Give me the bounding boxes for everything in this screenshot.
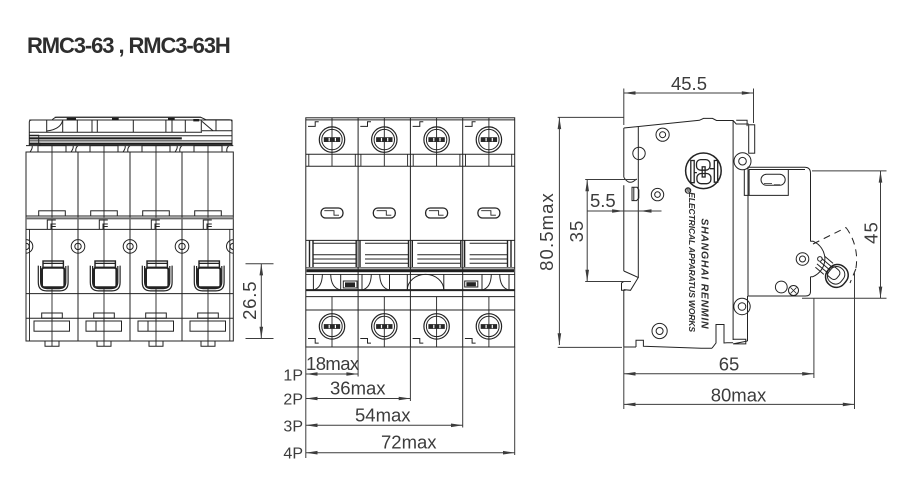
svg-text:80max: 80max: [711, 385, 767, 406]
svg-text:5.5: 5.5: [590, 190, 616, 211]
svg-text:26.5: 26.5: [239, 281, 260, 320]
svg-text:72max: 72max: [381, 432, 437, 453]
svg-text:1P: 1P: [283, 368, 303, 385]
svg-text:36max: 36max: [330, 378, 386, 399]
svg-text:SHANGHAI RENMIN: SHANGHAI RENMIN: [699, 218, 711, 329]
svg-text:18max: 18max: [306, 353, 360, 374]
svg-text:35: 35: [566, 220, 587, 243]
svg-text:54max: 54max: [355, 405, 411, 426]
svg-text:4P: 4P: [283, 446, 303, 463]
svg-text:RMC3-63 , RMC3-63H: RMC3-63 , RMC3-63H: [27, 33, 230, 58]
svg-text:3P: 3P: [283, 419, 303, 436]
svg-text:45.5: 45.5: [671, 73, 707, 94]
svg-text:ELECTRICAL APPARATUS WORKS: ELECTRICAL APPARATUS WORKS: [687, 192, 697, 332]
svg-text:45: 45: [861, 221, 882, 244]
svg-text:80.5max: 80.5max: [536, 192, 557, 271]
svg-text:65: 65: [719, 354, 740, 375]
svg-text:2P: 2P: [283, 392, 303, 409]
